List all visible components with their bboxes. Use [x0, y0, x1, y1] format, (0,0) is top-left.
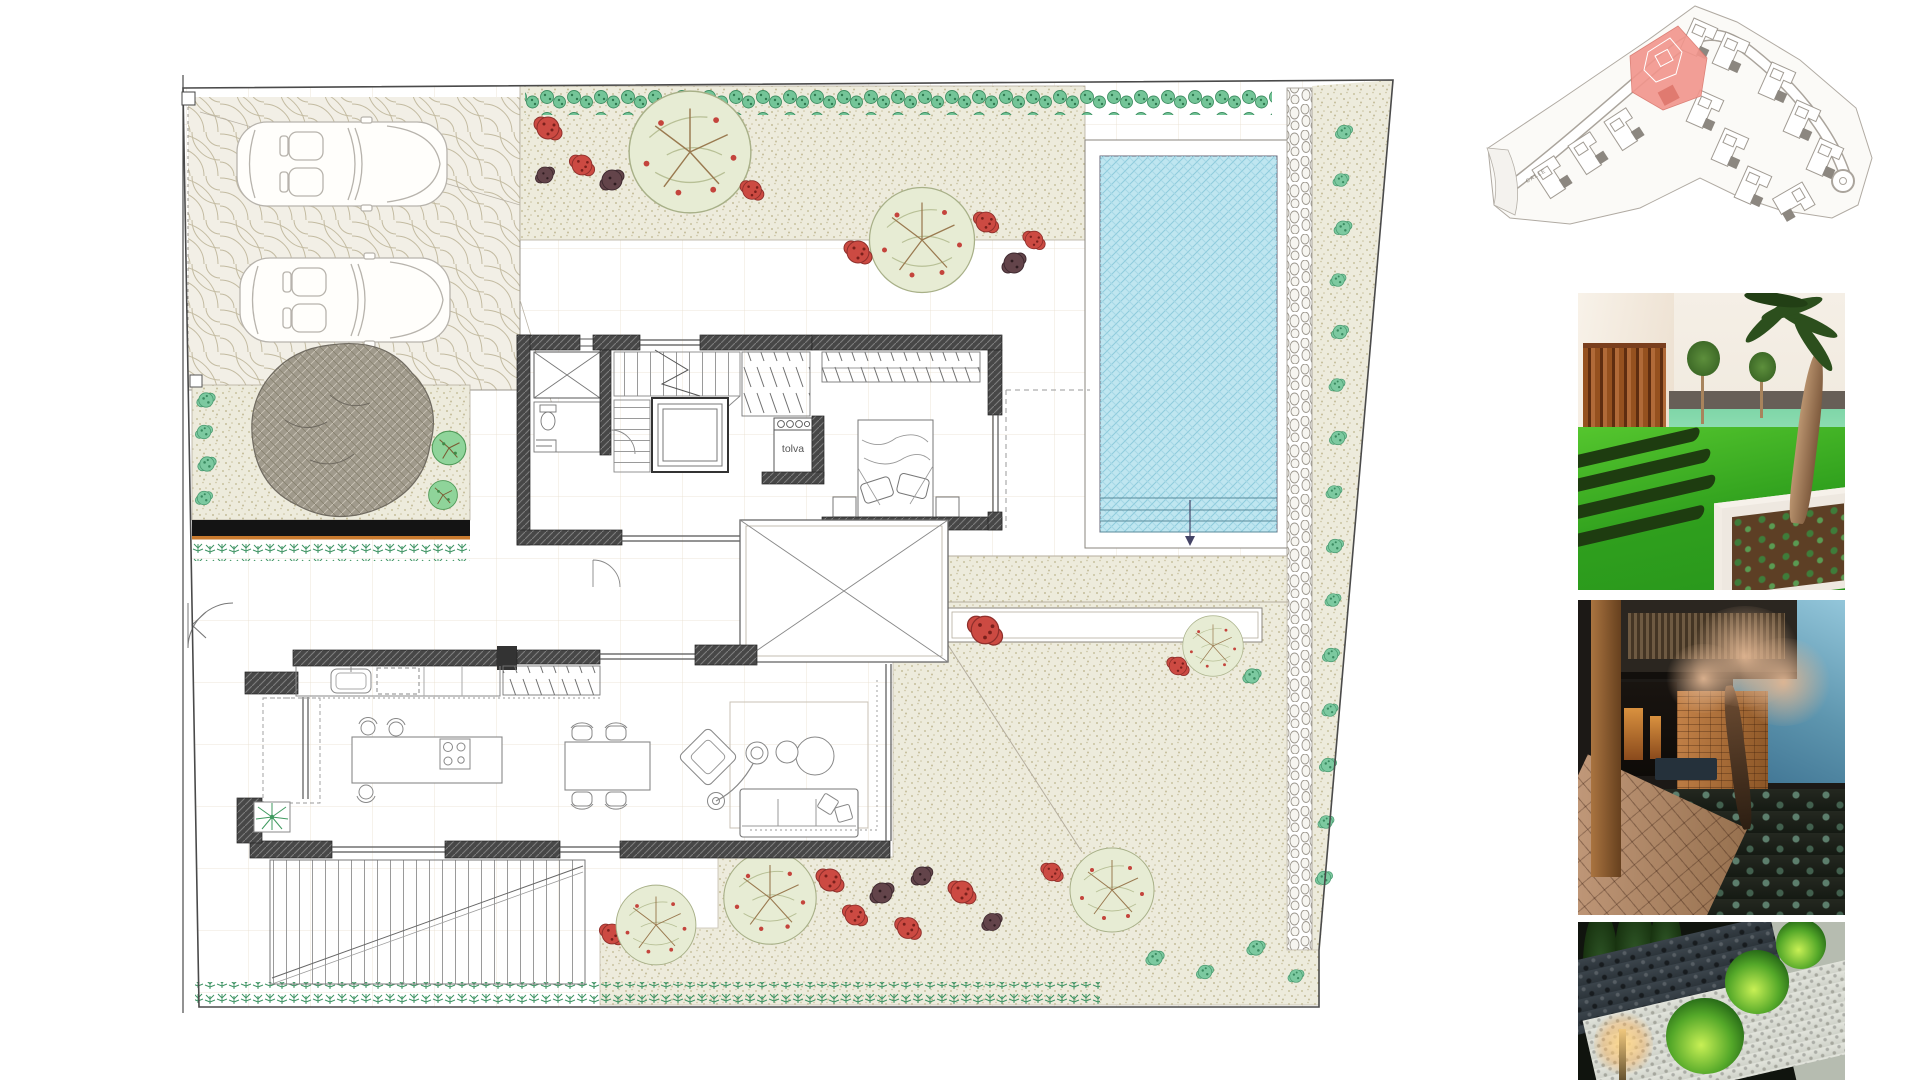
planter-pale-tree [1183, 616, 1243, 676]
wardrobe [822, 352, 980, 382]
exterior-wall-left [517, 335, 530, 545]
outdoor-sofa [1655, 758, 1716, 780]
lit-window [1624, 708, 1643, 760]
right-boundary-strip [1287, 80, 1393, 950]
lit-window [1650, 716, 1662, 759]
storage-room [534, 352, 600, 398]
boundary-marker [182, 92, 195, 105]
car-1 [237, 117, 447, 211]
elevator-shaft [652, 398, 728, 472]
nightstand [833, 497, 856, 517]
fern-hedge-bottom [195, 982, 1100, 1007]
boundary-marker [190, 375, 202, 387]
stone-mosaic-path [1287, 88, 1312, 950]
planter-bed [1732, 503, 1844, 590]
timber-slat-screen [1583, 343, 1666, 428]
hopper-label: tolva [782, 443, 804, 455]
side-table [776, 741, 798, 763]
round-bush [1725, 950, 1789, 1013]
coffee-table [796, 737, 834, 775]
tree-canopy [1749, 352, 1776, 382]
olive-canopy [1663, 644, 1743, 713]
fin-wall [245, 672, 298, 694]
site-plan: CALLE [1487, 6, 1872, 224]
small-green-tree [432, 431, 466, 465]
swimming-pool [1085, 140, 1292, 548]
indoor-plant [254, 802, 290, 832]
night-path-photo [1578, 922, 1845, 1080]
pergola-band [192, 520, 470, 536]
brochure-page: tolva [0, 0, 1920, 1080]
accent-strip [192, 536, 470, 540]
garden-hedges-photo [1578, 293, 1845, 590]
timber-pillar [1591, 600, 1620, 877]
exterior-stairs [270, 860, 585, 984]
small-green-tree [429, 481, 458, 510]
nightstand [936, 497, 959, 517]
large-gray-tree [252, 344, 434, 517]
roundabout [1832, 170, 1854, 192]
wc-room [534, 402, 600, 452]
bollard-light [1619, 1029, 1626, 1080]
olive-canopy [1733, 638, 1834, 726]
fern-hedge-row [192, 541, 470, 561]
double-bed [858, 420, 933, 517]
tree-canopy [1687, 341, 1719, 377]
round-bush [1666, 998, 1743, 1074]
entry-closet [503, 666, 600, 695]
skylight-void [740, 520, 948, 662]
car-2 [240, 253, 450, 347]
courtyard-dusk-photo [1578, 600, 1845, 915]
hedge-row-top [525, 88, 1272, 115]
dining-table [565, 742, 650, 790]
hall-closet [742, 352, 810, 416]
raised-planter [1714, 487, 1845, 590]
